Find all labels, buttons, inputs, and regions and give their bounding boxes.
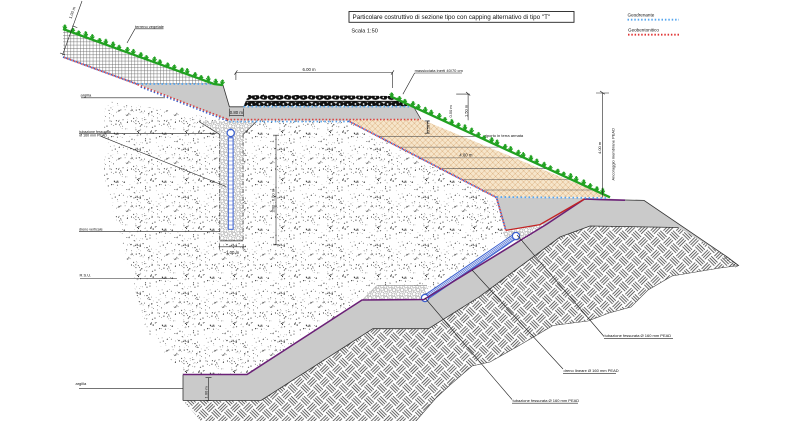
svg-text:R.S.U.: R.S.U. bbox=[80, 272, 92, 277]
svg-text:Ø 160 mm PEAD: Ø 160 mm PEAD bbox=[79, 134, 107, 138]
svg-text:Geobentonitico: Geobentonitico bbox=[628, 28, 659, 33]
svg-text:Particolare costruttivo di sez: Particolare costruttivo di sezione tipo … bbox=[353, 14, 551, 21]
svg-text:Geodrenante: Geodrenante bbox=[628, 13, 655, 18]
svg-text:0.80 m: 0.80 m bbox=[230, 110, 244, 115]
svg-text:riporto in terra armata: riporto in terra armata bbox=[485, 133, 524, 138]
svg-text:Ancoraggio membrane PEAD: Ancoraggio membrane PEAD bbox=[611, 128, 616, 181]
svg-text:terreno vegetale: terreno vegetale bbox=[135, 24, 165, 29]
svg-text:1.00 m: 1.00 m bbox=[203, 386, 208, 399]
svg-text:~1.00 m: ~1.00 m bbox=[224, 250, 240, 255]
svg-text:0.50 m: 0.50 m bbox=[448, 105, 453, 118]
svg-text:dreno verticale: dreno verticale bbox=[79, 227, 103, 231]
svg-text:1.50 m: 1.50 m bbox=[463, 104, 468, 117]
svg-text:6.00 m: 6.00 m bbox=[303, 67, 317, 72]
svg-text:2.00 - 6.00 m: 2.00 - 6.00 m bbox=[271, 188, 276, 212]
svg-text:argilla: argilla bbox=[76, 381, 87, 386]
svg-text:massicciata inerti 40/70 cm: massicciata inerti 40/70 cm bbox=[415, 68, 464, 73]
svg-text:4.00 m: 4.00 m bbox=[459, 153, 473, 158]
svg-text:4.00 m: 4.00 m bbox=[597, 141, 602, 154]
svg-text:tubazione fessurata Ø 160 mm P: tubazione fessurata Ø 160 mm PEAD bbox=[605, 333, 672, 338]
svg-text:tubazione fessurata Ø 160 mm P: tubazione fessurata Ø 160 mm PEAD bbox=[513, 398, 580, 403]
svg-text:argilla: argilla bbox=[81, 93, 92, 98]
svg-text:Scala 1:50: Scala 1:50 bbox=[351, 29, 377, 35]
svg-text:0.50 m: 0.50 m bbox=[426, 120, 431, 133]
svg-text:dreno lineare Ø 160 mm PEAD: dreno lineare Ø 160 mm PEAD bbox=[564, 368, 619, 373]
